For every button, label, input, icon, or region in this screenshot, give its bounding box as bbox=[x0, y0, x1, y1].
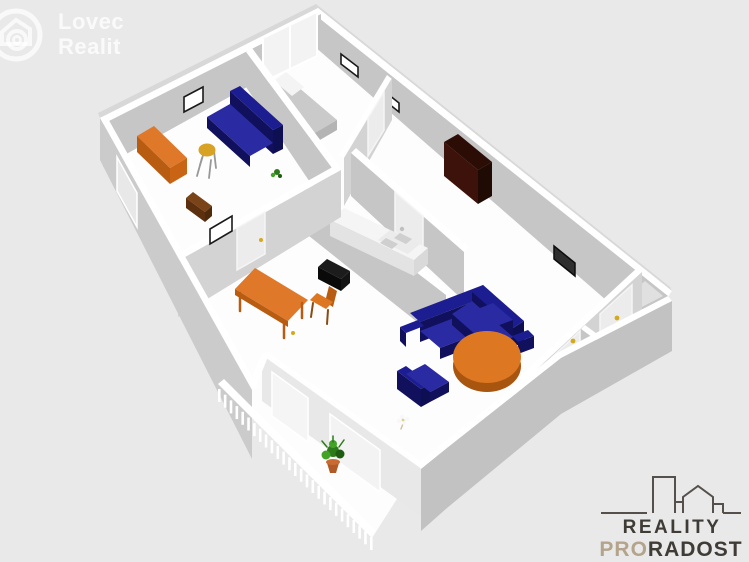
railing-baluster bbox=[329, 497, 332, 510]
door-handle bbox=[259, 238, 263, 242]
skyline-icon bbox=[601, 477, 741, 513]
railing-baluster bbox=[276, 446, 279, 459]
railing-baluster bbox=[352, 520, 355, 533]
railing-baluster bbox=[317, 486, 320, 499]
railing-baluster bbox=[230, 400, 233, 413]
railing-baluster bbox=[224, 395, 227, 408]
door-handle bbox=[571, 339, 576, 344]
railing-baluster bbox=[259, 429, 262, 442]
railing-baluster bbox=[341, 509, 344, 522]
floorplan-viewer: Lovec Realit REALITY PRORADOST bbox=[0, 0, 749, 562]
railing-baluster bbox=[306, 474, 309, 487]
railing-baluster bbox=[265, 435, 268, 448]
railing-baluster bbox=[253, 423, 256, 436]
agency-logo-line2: PRORADOST bbox=[599, 538, 742, 561]
railing-baluster bbox=[282, 452, 285, 465]
door-handle bbox=[291, 331, 295, 335]
railing-baluster bbox=[247, 417, 250, 430]
railing-baluster bbox=[370, 537, 373, 550]
railing-baluster bbox=[300, 469, 303, 482]
railing-baluster bbox=[347, 514, 350, 527]
railing-baluster bbox=[364, 531, 367, 544]
agency-logo: REALITY PRORADOST bbox=[595, 460, 747, 562]
railing-baluster bbox=[236, 406, 239, 419]
railing-baluster bbox=[323, 491, 326, 504]
railing-baluster bbox=[312, 480, 315, 493]
railing-baluster bbox=[335, 503, 338, 516]
railing-baluster bbox=[294, 463, 297, 476]
railing-baluster bbox=[218, 389, 221, 402]
railing-baluster bbox=[288, 457, 291, 470]
railing-baluster bbox=[358, 526, 361, 539]
agency-logo-line1: REALITY bbox=[623, 517, 722, 538]
coffee-table bbox=[453, 331, 521, 392]
door-handle bbox=[615, 316, 620, 321]
railing-baluster bbox=[241, 412, 244, 425]
railing-baluster bbox=[271, 440, 274, 453]
